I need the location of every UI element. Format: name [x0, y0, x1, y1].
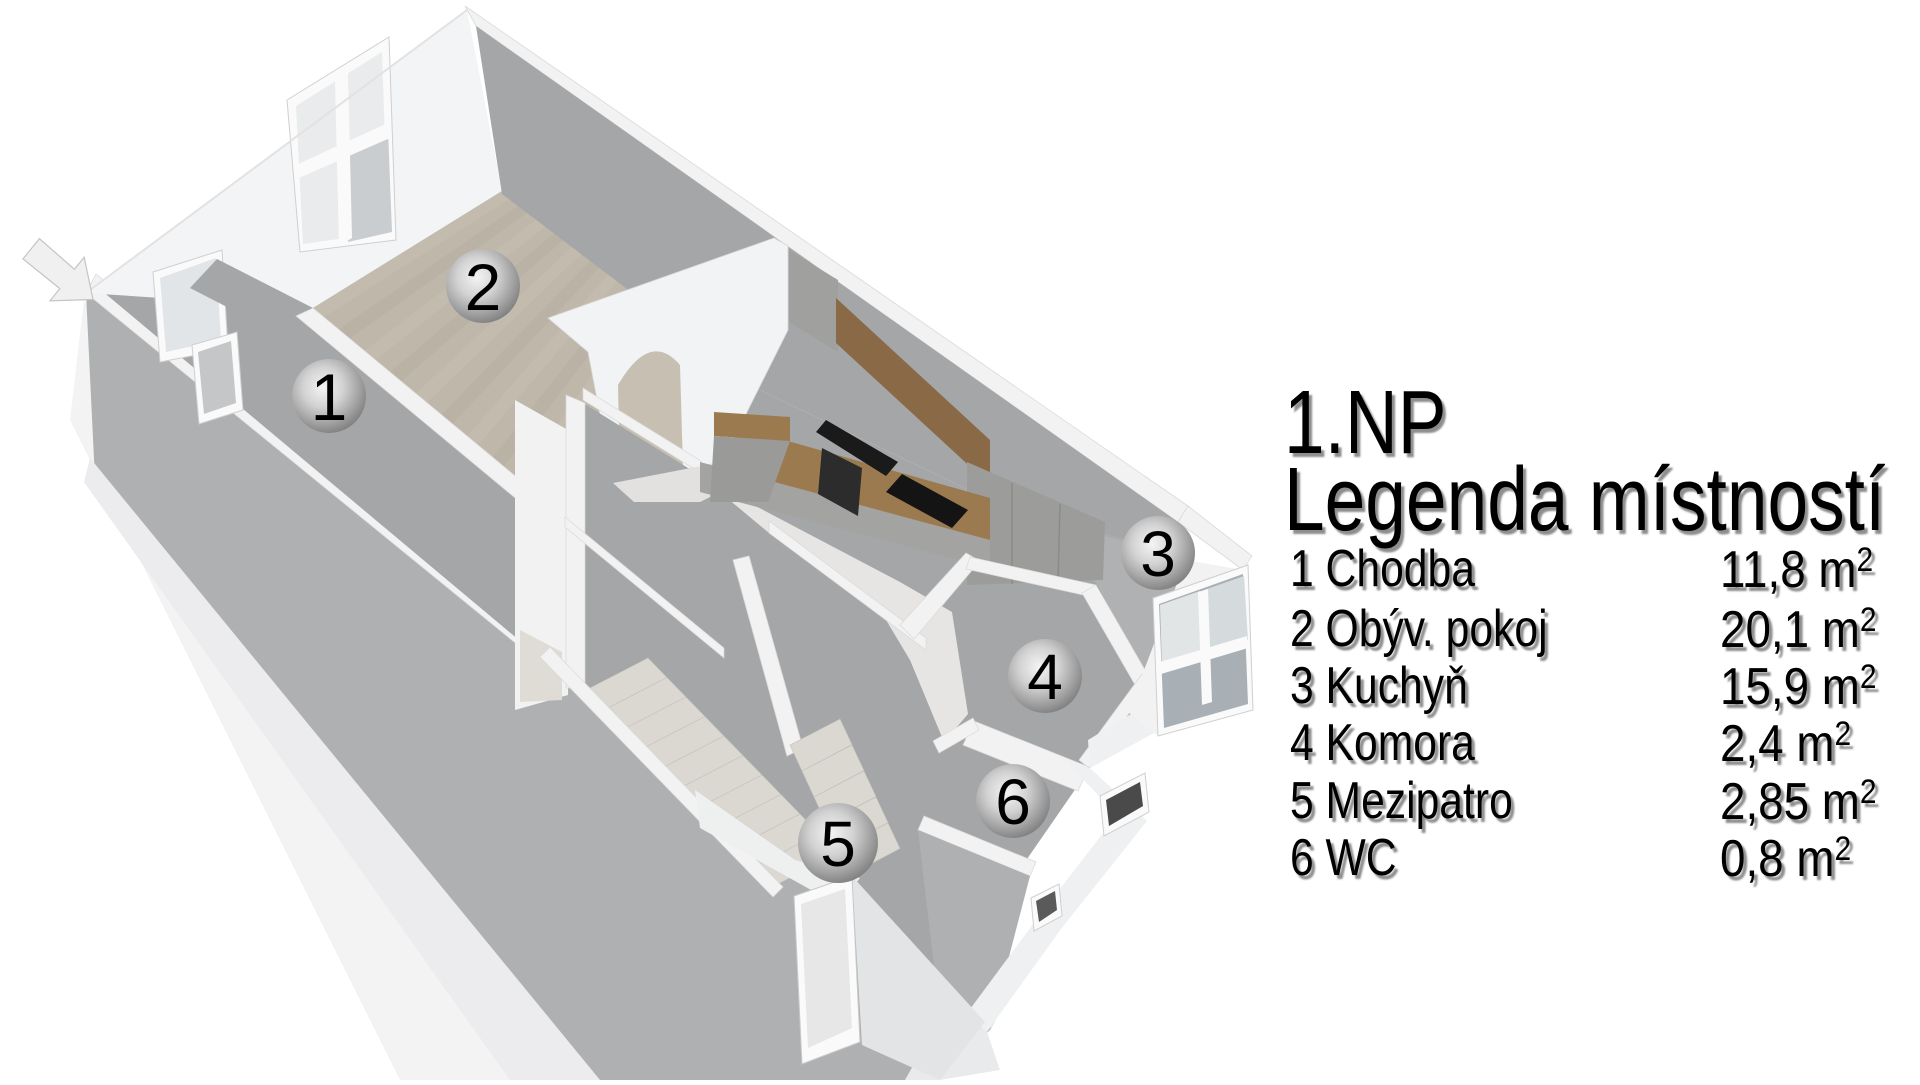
svg-text:3: 3 — [1140, 518, 1176, 590]
svg-text:1: 1 — [311, 360, 348, 434]
svg-text:6: 6 — [995, 766, 1031, 838]
svg-text:5: 5 — [820, 808, 856, 880]
svg-text:2: 2 — [465, 250, 502, 324]
svg-text:4: 4 — [1027, 641, 1063, 713]
